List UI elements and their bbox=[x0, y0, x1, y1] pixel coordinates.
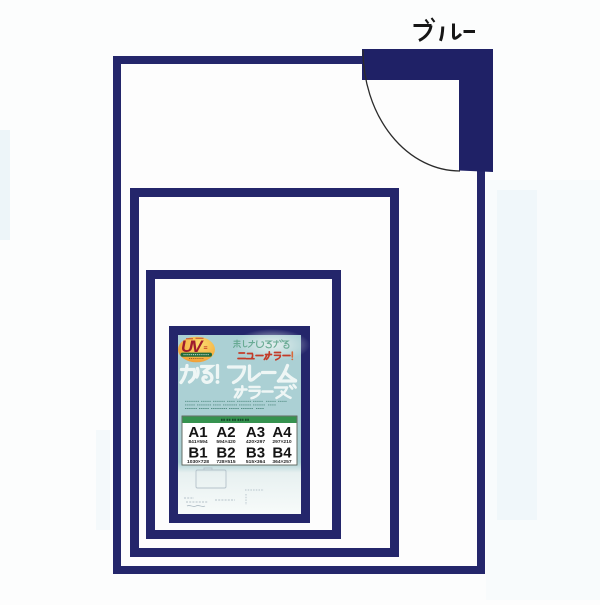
svg-text:420×297: 420×297 bbox=[246, 439, 265, 445]
svg-text:A4: A4 bbox=[272, 424, 292, 441]
svg-text:B1: B1 bbox=[188, 445, 207, 462]
svg-text:297×210: 297×210 bbox=[272, 439, 291, 445]
svg-text:A3: A3 bbox=[246, 424, 265, 441]
svg-text:A2: A2 bbox=[216, 424, 235, 441]
svg-text:841×594: 841×594 bbox=[188, 439, 207, 445]
svg-text:594×420: 594×420 bbox=[216, 439, 235, 445]
svg-text:728×515: 728×515 bbox=[216, 459, 235, 465]
svg-text:515×364: 515×364 bbox=[246, 459, 265, 465]
svg-text:B4: B4 bbox=[272, 445, 292, 462]
svg-text:364×257: 364×257 bbox=[272, 459, 291, 465]
svg-text:1030×728: 1030×728 bbox=[187, 459, 209, 465]
svg-text:A1: A1 bbox=[188, 424, 207, 441]
svg-text:B3: B3 bbox=[246, 445, 265, 462]
svg-text:B2: B2 bbox=[216, 445, 235, 462]
